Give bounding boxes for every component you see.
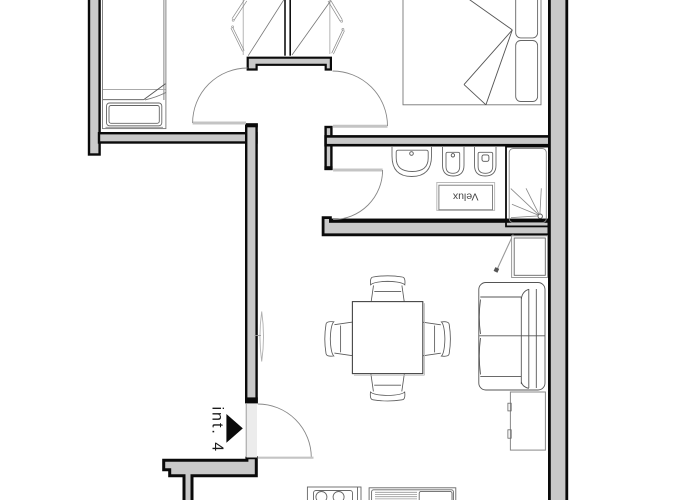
svg-text:Velux: Velux (452, 191, 478, 203)
svg-text:int. 4: int. 4 (208, 407, 225, 454)
